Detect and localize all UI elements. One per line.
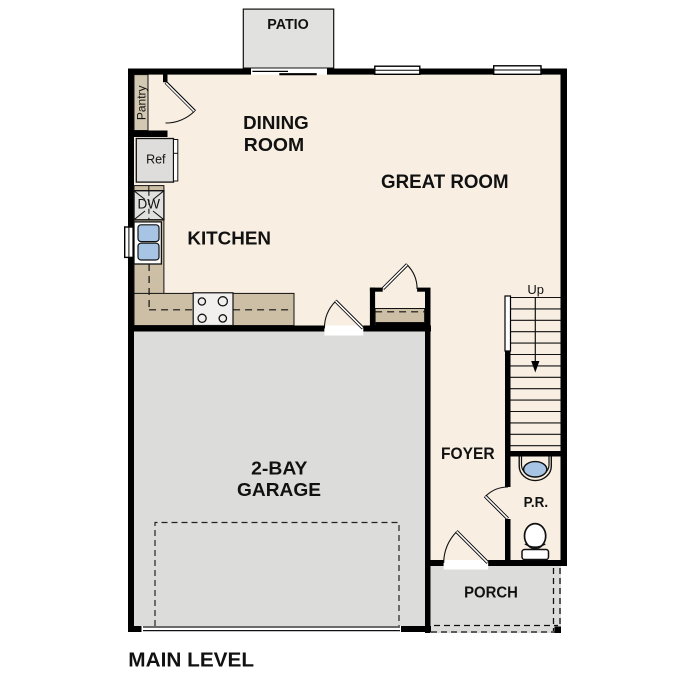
svg-text:GREAT ROOM: GREAT ROOM [381, 172, 509, 193]
svg-text:DINING: DINING [243, 112, 309, 133]
svg-text:PORCH: PORCH [464, 585, 518, 602]
svg-text:MAIN LEVEL: MAIN LEVEL [128, 648, 254, 671]
svg-text:DW: DW [138, 197, 161, 212]
svg-text:ROOM: ROOM [244, 134, 304, 155]
svg-text:Ref: Ref [146, 152, 166, 166]
svg-text:PATIO: PATIO [267, 17, 309, 33]
svg-text:Up: Up [527, 282, 544, 297]
svg-text:KITCHEN: KITCHEN [187, 228, 271, 249]
svg-text:P.R.: P.R. [524, 495, 549, 511]
svg-text:FOYER: FOYER [441, 445, 495, 463]
svg-text:GARAGE: GARAGE [237, 479, 321, 500]
svg-text:2-BAY: 2-BAY [251, 458, 308, 479]
svg-text:Pantry: Pantry [134, 85, 148, 120]
